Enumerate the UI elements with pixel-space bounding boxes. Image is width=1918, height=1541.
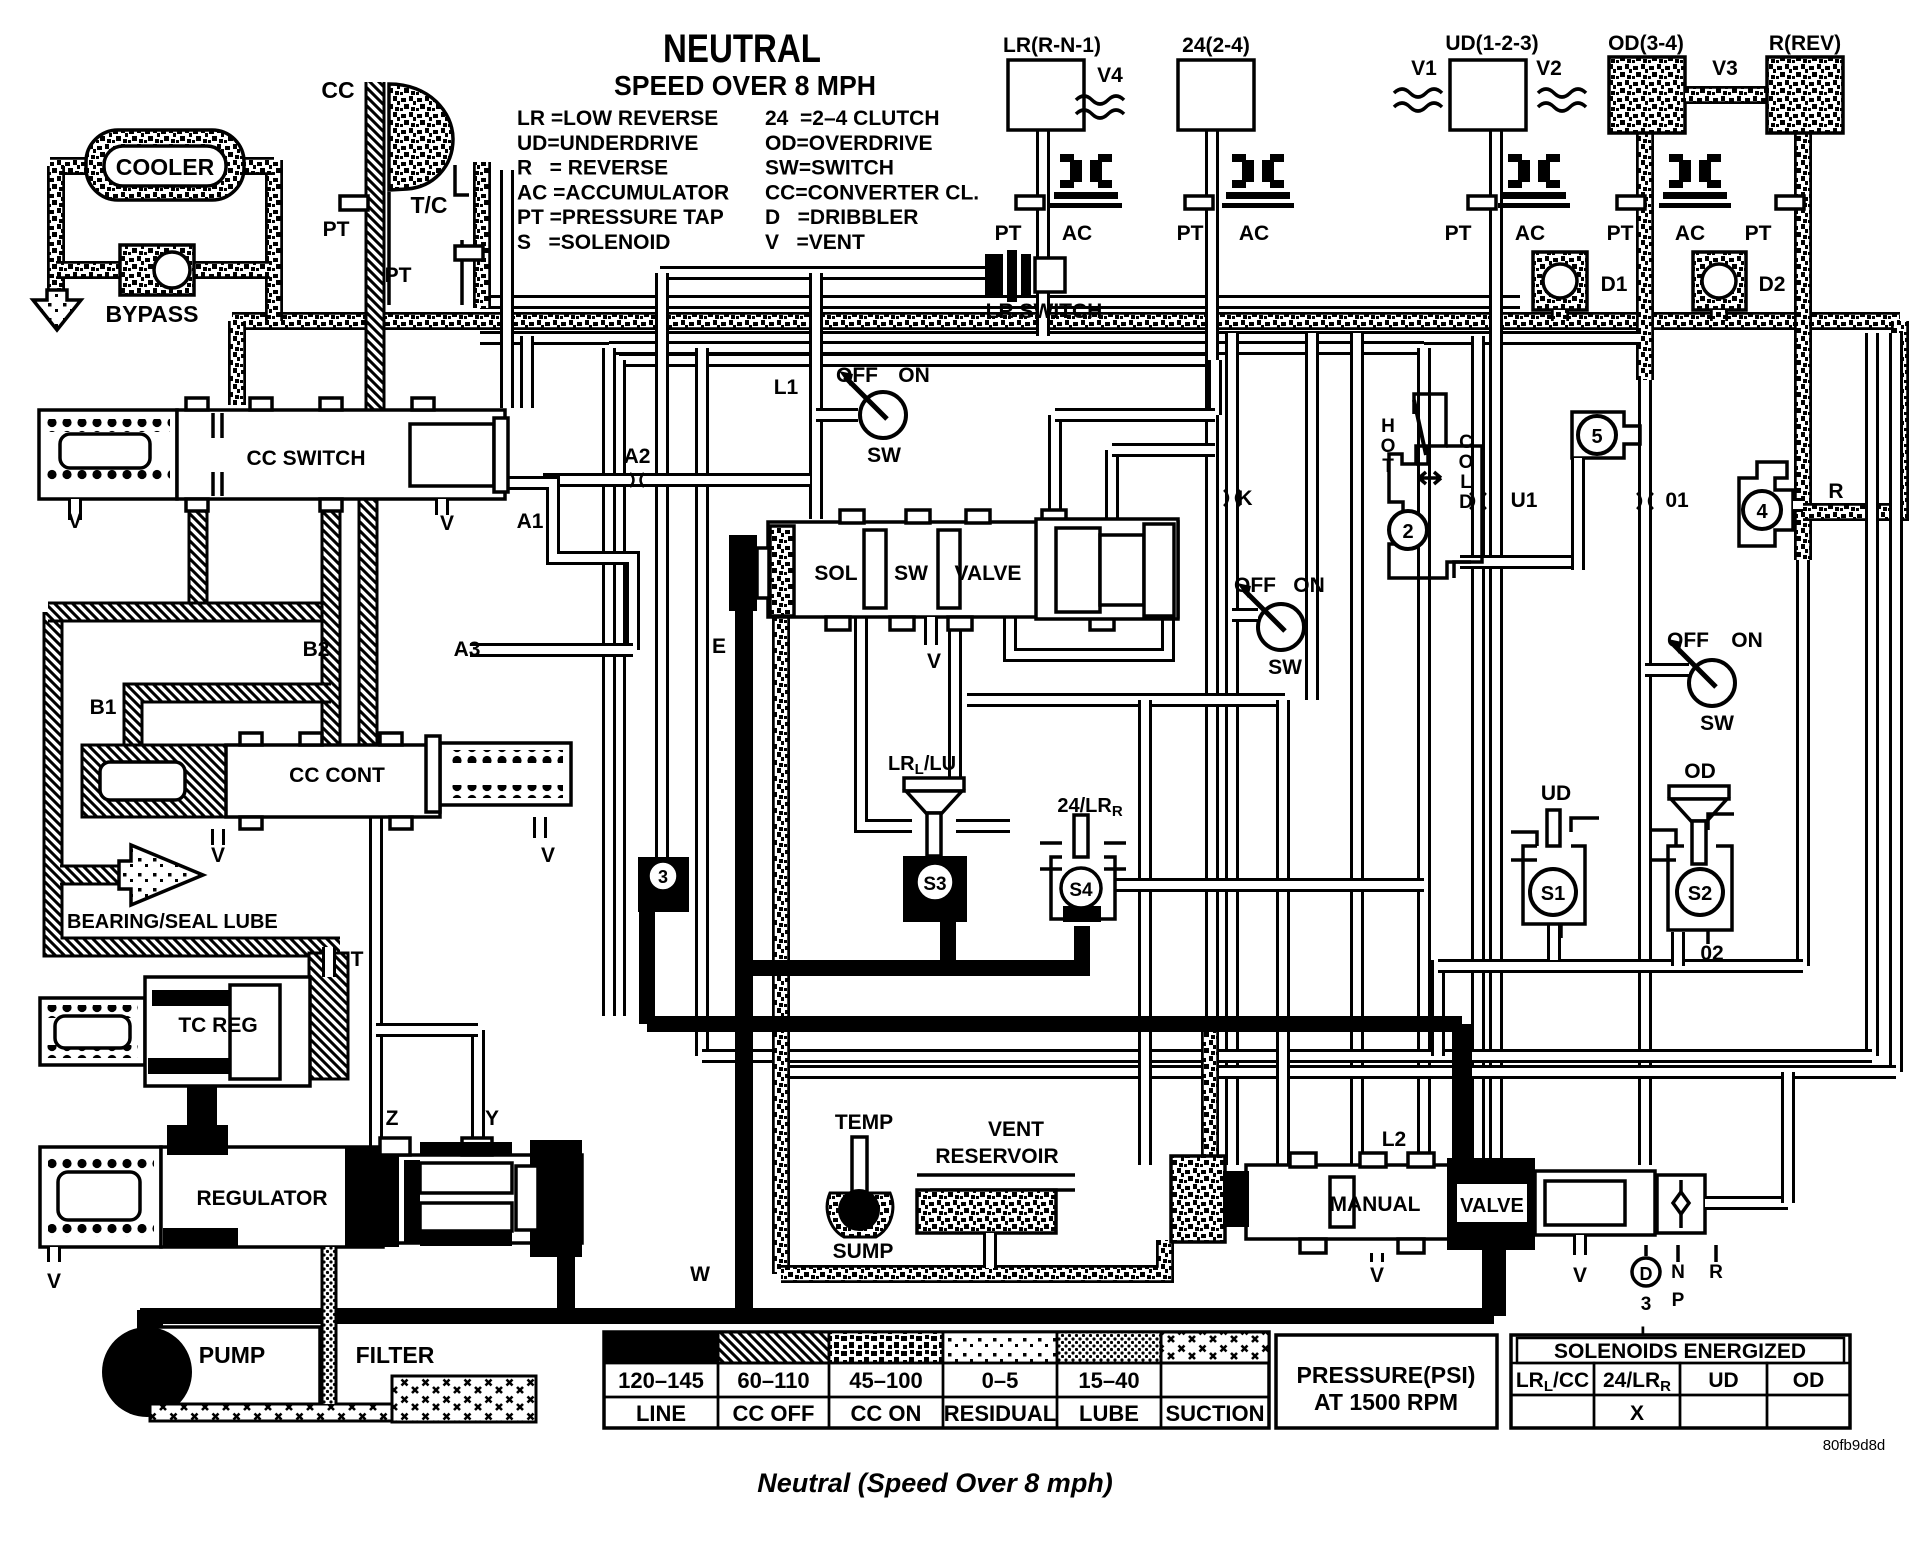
svg-text:CC: CC — [321, 77, 354, 103]
svg-text:TEMP: TEMP — [835, 1111, 893, 1134]
svg-text:SUCTION: SUCTION — [1166, 1401, 1265, 1426]
svg-text:U1: U1 — [1511, 489, 1538, 512]
svg-text:5: 5 — [1591, 426, 1602, 448]
svg-text:CC SWITCH: CC SWITCH — [247, 447, 366, 470]
svg-text:R: R — [1828, 480, 1843, 503]
svg-text:ON: ON — [898, 364, 930, 387]
svg-text:V: V — [927, 650, 941, 673]
svg-text:S =SOLENOID: S =SOLENOID — [517, 231, 670, 254]
svg-text:CC OFF: CC OFF — [733, 1401, 815, 1426]
svg-text:LINE: LINE — [636, 1401, 686, 1426]
svg-text:UD: UD — [1708, 1369, 1738, 1392]
svg-text:VALVE: VALVE — [955, 562, 1022, 585]
svg-text:0–5: 0–5 — [982, 1368, 1019, 1393]
svg-text:A3: A3 — [454, 638, 481, 661]
svg-text:REGULATOR: REGULATOR — [196, 1187, 327, 1210]
svg-text:CC ON: CC ON — [851, 1401, 922, 1426]
svg-text:V: V — [541, 844, 555, 867]
svg-text:BYPASS: BYPASS — [106, 301, 199, 327]
svg-text:R(REV): R(REV) — [1769, 32, 1841, 55]
svg-text:02: 02 — [1700, 942, 1723, 965]
svg-text:NEUTRAL: NEUTRAL — [663, 27, 821, 71]
svg-text:SUMP: SUMP — [833, 1240, 894, 1263]
svg-text:W: W — [690, 1263, 710, 1286]
svg-text:RESIDUAL: RESIDUAL — [944, 1401, 1056, 1426]
svg-text:B1: B1 — [90, 696, 117, 719]
svg-text:AC =ACCUMULATOR: AC =ACCUMULATOR — [517, 181, 729, 204]
svg-text:24(2-4): 24(2-4) — [1182, 34, 1250, 57]
svg-text:120–145: 120–145 — [618, 1368, 704, 1393]
svg-text:PT: PT — [1745, 222, 1772, 245]
svg-text:LR(R-N-1): LR(R-N-1) — [1003, 34, 1101, 57]
svg-text:OFF: OFF — [1234, 574, 1276, 597]
svg-text:X: X — [1630, 1402, 1644, 1425]
svg-text:C: C — [1459, 432, 1473, 453]
svg-text:L2: L2 — [1382, 1128, 1407, 1151]
svg-text:OD(3-4): OD(3-4) — [1608, 32, 1684, 55]
svg-text:15–40: 15–40 — [1078, 1368, 1139, 1393]
svg-text:PT: PT — [323, 218, 350, 241]
svg-text:MANUAL: MANUAL — [1330, 1193, 1421, 1216]
svg-text:AT 1500 RPM: AT 1500 RPM — [1314, 1389, 1458, 1415]
svg-text:A2: A2 — [624, 445, 651, 468]
svg-text:4: 4 — [1756, 501, 1768, 523]
svg-text:45–100: 45–100 — [849, 1368, 922, 1393]
svg-text:R: R — [1709, 1262, 1723, 1283]
svg-text:60–110: 60–110 — [737, 1368, 809, 1393]
svg-text:S3: S3 — [923, 874, 946, 895]
svg-text:OFF: OFF — [836, 364, 878, 387]
svg-text:VENT: VENT — [988, 1118, 1044, 1141]
svg-text:O: O — [1381, 436, 1396, 457]
svg-text:D: D — [1459, 492, 1473, 513]
svg-text:AC: AC — [1062, 222, 1092, 245]
svg-text:Z: Z — [386, 1107, 399, 1130]
svg-text:SW=SWITCH: SW=SWITCH — [765, 157, 894, 180]
svg-text:T: T — [1382, 456, 1394, 477]
svg-text:R = REVERSE: R = REVERSE — [517, 157, 668, 180]
svg-text:H: H — [1381, 416, 1395, 437]
svg-text:V: V — [211, 844, 225, 867]
svg-text:V =VENT: V =VENT — [765, 231, 865, 254]
svg-text:Neutral (Speed Over 8 mph): Neutral (Speed Over 8 mph) — [757, 1468, 1113, 1498]
svg-text:SW: SW — [1268, 656, 1302, 679]
svg-text:01: 01 — [1665, 489, 1689, 512]
svg-text:AC: AC — [1515, 222, 1545, 245]
svg-text:TC REG: TC REG — [178, 1014, 257, 1037]
svg-text:OFF: OFF — [1667, 629, 1709, 652]
svg-text:D1: D1 — [1601, 273, 1628, 296]
svg-text:CC=CONVERTER CL.: CC=CONVERTER CL. — [765, 181, 979, 204]
svg-text:PT =PRESSURE TAP: PT =PRESSURE TAP — [517, 206, 724, 229]
svg-text:D =DRIBBLER: D =DRIBBLER — [765, 206, 918, 229]
svg-text:N: N — [1671, 1262, 1685, 1283]
svg-text:V: V — [1370, 1264, 1384, 1287]
svg-text:24 =2–4 CLUTCH: 24 =2–4 CLUTCH — [765, 107, 939, 130]
svg-text:E: E — [712, 635, 726, 658]
svg-text:SW: SW — [894, 562, 928, 585]
svg-text:BEARING/SEAL LUBE: BEARING/SEAL LUBE — [67, 911, 278, 933]
svg-text:P: P — [1672, 1290, 1685, 1311]
svg-text:PT: PT — [1445, 222, 1472, 245]
svg-text:PUMP: PUMP — [199, 1342, 265, 1368]
svg-text:ON: ON — [1731, 629, 1763, 652]
svg-text:SOLENOIDS ENERGIZED: SOLENOIDS ENERGIZED — [1554, 1340, 1806, 1363]
svg-text:V3: V3 — [1712, 57, 1738, 80]
svg-text:3: 3 — [1641, 1294, 1652, 1315]
svg-text:UD: UD — [1541, 782, 1571, 805]
svg-text:80fb9d8d: 80fb9d8d — [1823, 1437, 1886, 1454]
svg-text:AC: AC — [1239, 222, 1269, 245]
svg-text:LRL/CC: LRL/CC — [1516, 1369, 1589, 1395]
svg-text:OD: OD — [1684, 760, 1716, 783]
svg-text:LR =LOW REVERSE: LR =LOW REVERSE — [517, 107, 718, 130]
svg-text:UD(1-2-3): UD(1-2-3) — [1445, 32, 1538, 55]
svg-text:T: T — [351, 948, 364, 971]
svg-text:V1: V1 — [1411, 57, 1437, 80]
svg-text:ON: ON — [1293, 574, 1325, 597]
svg-text:2: 2 — [1402, 521, 1413, 543]
svg-text:T/C: T/C — [410, 192, 447, 218]
svg-text:PT: PT — [1607, 222, 1634, 245]
svg-text:S4: S4 — [1069, 880, 1093, 901]
svg-text:S2: S2 — [1688, 883, 1712, 905]
svg-text:A1: A1 — [517, 510, 544, 533]
svg-text:PRESSURE(PSI): PRESSURE(PSI) — [1297, 1362, 1476, 1388]
svg-text:SW: SW — [1700, 712, 1734, 735]
svg-text:Y: Y — [485, 1107, 499, 1130]
svg-text:V2: V2 — [1536, 57, 1562, 80]
svg-text:O: O — [1459, 452, 1474, 473]
svg-text:FILTER: FILTER — [356, 1342, 435, 1368]
svg-text:V: V — [68, 510, 82, 533]
svg-text:PT: PT — [1177, 222, 1204, 245]
svg-text:B2: B2 — [303, 638, 330, 661]
svg-text:LR SWITCH: LR SWITCH — [986, 300, 1103, 323]
svg-text:VALVE: VALVE — [1460, 1195, 1524, 1217]
svg-text:COOLER: COOLER — [116, 154, 215, 180]
svg-text:SW: SW — [867, 444, 901, 467]
svg-text:AC: AC — [1675, 222, 1705, 245]
svg-text:SOL: SOL — [814, 562, 857, 585]
svg-text:V: V — [440, 512, 454, 535]
svg-text:UD=UNDERDRIVE: UD=UNDERDRIVE — [517, 132, 698, 155]
svg-text:OD=OVERDRIVE: OD=OVERDRIVE — [765, 132, 932, 155]
svg-text:D: D — [1640, 1264, 1653, 1284]
svg-text:L: L — [1460, 472, 1472, 493]
svg-text:3: 3 — [658, 867, 668, 887]
svg-text:PT: PT — [385, 264, 412, 287]
svg-text:D2: D2 — [1759, 273, 1786, 296]
svg-text:LUBE: LUBE — [1079, 1401, 1139, 1426]
svg-text:S1: S1 — [1541, 883, 1565, 905]
svg-text:V: V — [1573, 1264, 1587, 1287]
svg-text:L1: L1 — [774, 376, 799, 399]
svg-text:OD: OD — [1793, 1369, 1825, 1392]
svg-text:V4: V4 — [1097, 64, 1123, 87]
svg-text:RESERVOIR: RESERVOIR — [935, 1145, 1058, 1168]
svg-text:SPEED OVER 8 MPH: SPEED OVER 8 MPH — [614, 70, 876, 101]
svg-text:CC CONT: CC CONT — [289, 764, 385, 787]
svg-text:PT: PT — [995, 222, 1022, 245]
svg-text:V: V — [47, 1270, 61, 1293]
